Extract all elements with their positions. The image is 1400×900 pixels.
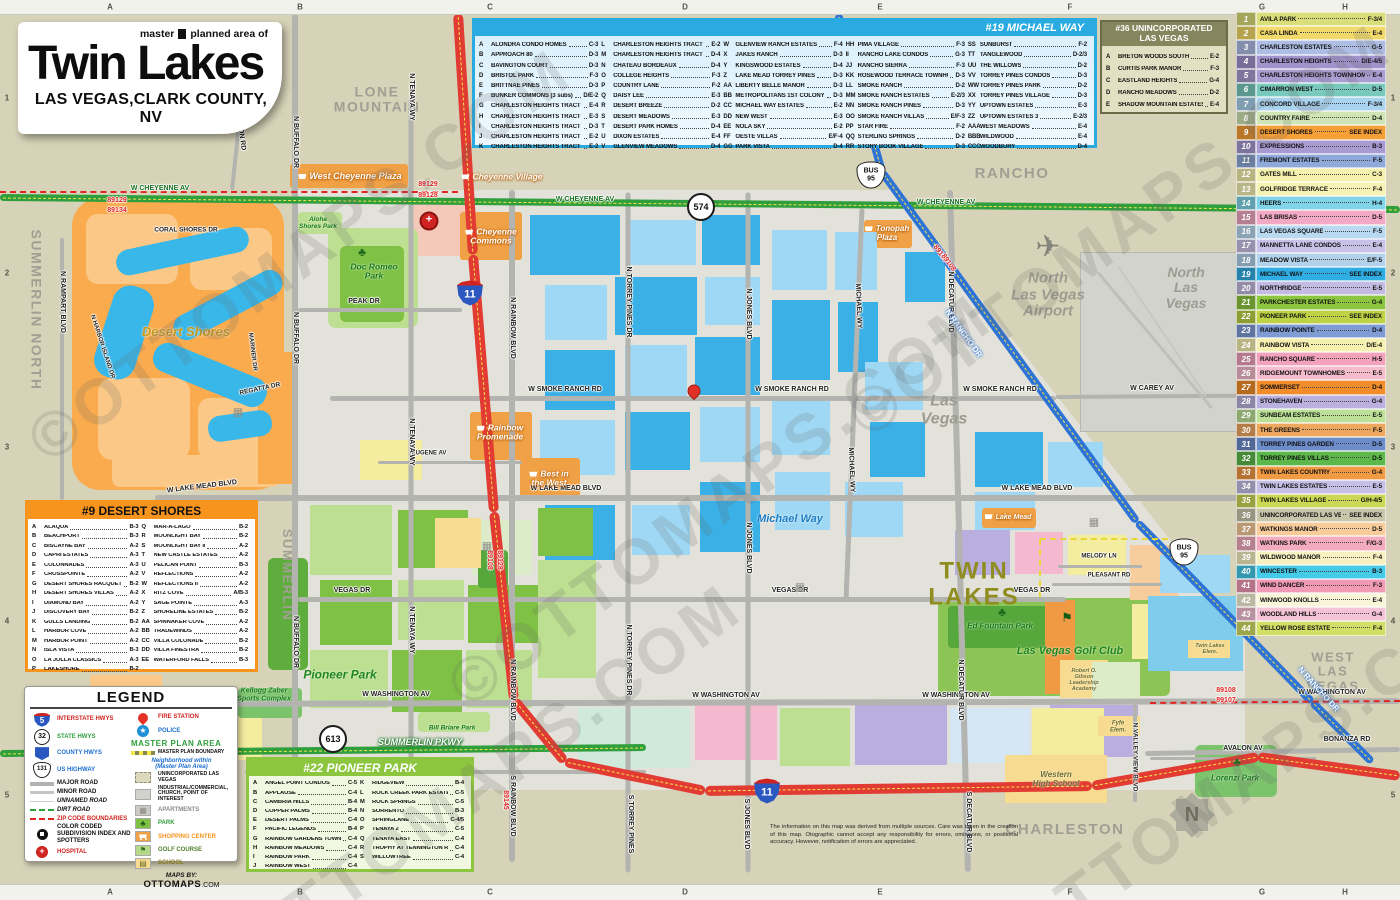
sidebar-entry: 2CASA LINDAE-4 (1236, 26, 1386, 40)
state-route-icon: 32 (34, 729, 50, 745)
disclaimer-text: The information on this map was derived … (770, 824, 1018, 847)
index-entry: ZZUPTOWN ESTATES 3E-2/3 (968, 109, 1087, 119)
map-region (1148, 596, 1243, 671)
index-title: #19 MICHAEL WAY (475, 21, 1094, 36)
index-entry: FCROSSPOINTEA-2 (32, 569, 139, 579)
legend-minor-road: MINOR ROAD (30, 789, 131, 796)
map-label: WEST LAS VEGAS (1306, 651, 1359, 694)
sidebar-entry: 11FREMONT ESTATESF-5 (1236, 154, 1386, 168)
grid-letter: A (107, 3, 113, 12)
zip-boundary-icon (30, 818, 54, 820)
map-region (632, 505, 690, 555)
index-entry: SWILLOWTREEC-4 (360, 852, 464, 861)
index-pioneer-park: #22 PIONEER PARK AANGEL POINT CONDOSC-5B… (246, 757, 474, 872)
index-entry: XJAKES RANCHD-3 (723, 48, 842, 58)
index-entry: PCOUNTRY LANEF-2 (601, 79, 720, 89)
legend-dirt-road: DIRT ROAD (30, 807, 131, 814)
map-region (538, 560, 596, 678)
grid-number: 2 (5, 269, 9, 278)
grid-letter: B (297, 3, 303, 12)
map-region (310, 650, 388, 708)
index-entry: ABRETON WOODS SOUTHE-2 (1106, 48, 1219, 60)
index-entry: MMSMOKE RANCH ESTATESE-2/3 (846, 89, 965, 99)
sidebar-entry: 35TWIN LAKES VILLAGEG/H-4/5 (1236, 494, 1386, 508)
map-region (700, 407, 760, 462)
map-region (435, 518, 481, 568)
sidebar-entry: 26RIDGEMOUNT TOWNHOMESE-5 (1236, 366, 1386, 380)
grid-number: 5 (1391, 791, 1395, 800)
index-entry: EENOLA SKYE-2 (723, 120, 842, 130)
legend-industrial: INDUSTRIAL/COMMERCIAL, CHURCH, POINT OF … (131, 786, 232, 803)
sidebar-entry: 31TORREY PINES GARDEND-5 (1236, 437, 1386, 451)
map-label: SUMMERLIN NORTH (28, 230, 43, 391)
index-entry: HCHARLESTON HEIGHTS TRACT #50E-3 (479, 109, 598, 119)
index-entry: RDESERT BREEZED-2 (601, 99, 720, 109)
index-entry: LROCK CREEK PARK ESTATESC-5 (360, 787, 464, 796)
road (155, 495, 1256, 501)
index-entry: MHARBOR POINTA-2 (32, 635, 139, 645)
road (1058, 565, 1142, 568)
map-region (545, 350, 615, 410)
index-title: #9 DESERT SHORES (28, 503, 255, 519)
index-entry: WREFLECTIONS IIA-2 (142, 578, 249, 588)
index-entry: AANGEL POINT CONDOSC-5 (253, 778, 357, 787)
index-entry: HDESERT SHORES VILLASA-2 (32, 588, 139, 598)
index-entry: QDAISY LEEE-3 (601, 89, 720, 99)
map-region (865, 362, 923, 410)
highway-shield: 11 (754, 779, 781, 804)
index-entry: DDNEW WESTE-3 (723, 109, 842, 119)
road (292, 14, 298, 792)
index-entry: ICHARLESTON HEIGHTS TRACT #51D-3 (479, 120, 598, 130)
index-entry: DDVILLA FINESTRAB-2 (142, 645, 249, 655)
sidebar-entry: 17MANNETTA LANE CONDOSE-4 (1236, 239, 1386, 253)
sidebar-entry: 22PIONEER PARKSEE INDEX (1236, 310, 1386, 324)
grid-letter: F (1068, 888, 1073, 897)
index-entry: VGLENVIEW MEADOWSD-4 (601, 140, 720, 150)
sidebar-entry: 23RAINBOW POINTED-4 (1236, 324, 1386, 338)
road (1309, 699, 1375, 765)
title-block: masterplanned area of Twin Lakes LAS VEG… (18, 22, 282, 134)
index-entry: BBMETROPOLITANS 1ST COLONYD-3 (723, 89, 842, 99)
sidebar-entry: 4CHARLESTON HEIGHTSD/E-4/5 (1236, 55, 1386, 69)
minor-road-icon (30, 791, 54, 794)
legend-zip: ZIP CODE BOUNDARIES (30, 816, 131, 823)
legend-unnamed-road: UNNAMED ROAD (30, 798, 131, 805)
index-entry: QTENAYA EASTC-4 (360, 833, 464, 842)
map-region (268, 558, 308, 670)
map-region (530, 215, 620, 275)
index-entry: BBBWILDWOODE-4 (968, 130, 1087, 140)
grid-bar-top (0, 0, 1400, 15)
index-entry: SMOONLIGHT BAY IIA-2 (142, 540, 249, 550)
map-region (955, 530, 1010, 575)
index-title: #22 PIONEER PARK (249, 760, 471, 776)
police-icon: ★ (137, 725, 149, 737)
legend-fire: FIRE STATION (131, 713, 232, 723)
legend-state: 32 STATE HWYS (30, 729, 131, 745)
map-region (625, 412, 690, 470)
sidebar-entry: 41WIND DANCERF-3 (1236, 579, 1386, 593)
legend-title: LEGEND (30, 690, 232, 709)
map-region (1188, 640, 1230, 658)
index-entry: KCHARLESTON HEIGHTS TRACT #54E-2 (479, 140, 598, 150)
map-region (1032, 708, 1104, 758)
sidebar-entry: 30THE GREENSF-5 (1236, 423, 1386, 437)
road (509, 190, 515, 862)
dirt-road-icon (30, 809, 54, 811)
master-plan-boundary-icon (131, 751, 155, 755)
sidebar-entry: 29SUNBEAM ESTATESE-5 (1236, 409, 1386, 423)
index-entry: FBUNKER COMMONS (3 subs)D/E-2 (479, 89, 598, 99)
sidebar-entry: 10EXPRESSIONSB-3 (1236, 140, 1386, 154)
road (1052, 583, 1162, 586)
grid-letter: G (1259, 888, 1265, 897)
sidebar-entry: 6CIMARRON WESTD-5 (1236, 83, 1386, 97)
map-region (982, 508, 1036, 528)
sidebar-entry: 15LAS BRISASD-5 (1236, 210, 1386, 224)
legend-master-plan-area: MASTER PLAN AREA (131, 739, 232, 748)
index-unincorporated: #36 UNINCORPORATED LAS VEGAS ABRETON WOO… (1100, 20, 1228, 114)
index-entry: IIRANCHO LAKE CONDOSG-3 (846, 48, 965, 58)
index-entry: ZLAKE MEAD TORREY PINESD-3 (723, 69, 842, 79)
map-title: Twin Lakes (28, 36, 274, 91)
road (60, 238, 64, 500)
index-entry: LHARBOR COVEA-2 (32, 626, 139, 636)
interstate-shield-icon: 5 (34, 713, 51, 727)
index-entry: NNSMOKE RANCH PINESD-3 (846, 99, 965, 109)
legend: LEGEND 5 INTERSTATE HWYS 32 STATE HWYS C… (24, 686, 238, 862)
index-entry: JCHARLESTON HEIGHTS TRACT #53E-2 (479, 130, 598, 140)
grid-number: 5 (5, 791, 9, 800)
index-entry: NSORRENTOB-3 (360, 806, 464, 815)
grid-letter: G (1259, 3, 1265, 12)
map-region (780, 708, 850, 766)
legend-apartments: APARTMENTS (131, 805, 232, 816)
index-entry: GCHARLESTON HEIGHTS TRACT #49E-4 (479, 99, 598, 109)
index-entry: OSPRINGLANEC-4/5 (360, 815, 464, 824)
index-entry: CEASTLAND HEIGHTSG-4 (1106, 72, 1219, 84)
sidebar-entry: 19MICHAEL WAYSEE INDEX (1236, 267, 1386, 281)
index-entry: SDESERT MEADOWSE-3 (601, 109, 720, 119)
legend-spotters: COLOR CODED SUBDIVISION INDEX AND SPOTTE… (30, 824, 131, 844)
map-region (870, 422, 925, 477)
grid-number: 2 (1391, 269, 1395, 278)
index-entry: DRANCHO MEADOWSD-2 (1106, 84, 1219, 96)
index-entry: YSAGE POINTEA-3 (142, 597, 249, 607)
sidebar-entry: 32TORREY PINES VILLASD-5 (1236, 451, 1386, 465)
index-entry: EDESERT PALMSC-4 (253, 815, 357, 824)
index-entry: EEWATERFORD FALLSB-3 (142, 654, 249, 664)
golf-flag-icon (135, 845, 151, 856)
index-entry: IDIAMOND BAYA-2 (32, 597, 139, 607)
index-entry: OCOLLEGE HEIGHTSF-3 (601, 69, 720, 79)
industrial-swatch-icon (135, 789, 151, 800)
map-region (855, 705, 947, 765)
index-entry: UUTHE WILLOWSD-2 (968, 58, 1087, 68)
index-michael-way: #19 MICHAEL WAY AALONDRA CONDO HOMESC-3B… (472, 18, 1097, 148)
index-entry: HRAINBOW MEADOWSC-4 (253, 842, 357, 851)
map-region (578, 708, 690, 768)
index-entry: FPACIFIC LEGENDSB-4 (253, 824, 357, 833)
index-entry: DCAPRI ESTATESA-3 (32, 550, 139, 560)
map-region (320, 580, 392, 645)
unincorporated-swatch-icon (135, 772, 151, 783)
sidebar-entry: 25RANCHO SQUAREH-5 (1236, 352, 1386, 366)
index-entry: JRAINBOW WESTC-4 (253, 861, 357, 870)
us-shield-icon: 131 (33, 762, 51, 778)
map-region (700, 482, 760, 552)
index-entry: ECOLONNADESA-3 (32, 559, 139, 569)
index-entry: SSSUNBURSTF-2 (968, 38, 1087, 48)
index-entry: AAAWEST MEADOWSE-4 (968, 120, 1087, 130)
sidebar-entry: 28STONEHAVENG-4 (1236, 395, 1386, 409)
county-shield-icon (35, 747, 49, 760)
legend-school: SCHOOL (131, 858, 232, 869)
road (746, 192, 751, 872)
index-entry: VVTORREY PINES CONDOSD-3 (968, 69, 1087, 79)
sidebar-entry: 39WILDWOOD MANORF-4 (1236, 551, 1386, 565)
map-region (628, 220, 696, 265)
map-region (772, 397, 830, 455)
map-region (470, 412, 532, 460)
legend-hospital: + HOSPITAL (30, 846, 131, 858)
index-entry: CBISCAYNE BAYA-2 (32, 540, 139, 550)
legend-police: ★ POLICE (131, 725, 232, 737)
index-entry: OLA JOLLA CLASSICSA-3 (32, 654, 139, 664)
map-region (625, 345, 687, 400)
legend-golf: GOLF COURSE (131, 845, 232, 856)
map-region (98, 378, 190, 460)
hospital-icon: + (36, 846, 48, 858)
road (1040, 538, 1168, 540)
index-entry: UPELICAN POINTB-3 (142, 559, 249, 569)
index-entry: CCVILLA COLONADEB-2 (142, 635, 249, 645)
index-entry: XRITZ COVEA/B-3 (142, 588, 249, 598)
legend-park: PARK (131, 818, 232, 829)
index-entry: PPSTAR FIREF-2 (846, 120, 965, 130)
index-entry: AALONDRA CONDO HOMESC-3 (479, 38, 598, 48)
sidebar-entry: 20NORTHRIDGEE-5 (1236, 281, 1386, 295)
sidebar-entry: 38WATKINS PARKF/G-3 (1236, 536, 1386, 550)
sidebar-entry: 37WATKINGS MANORD-5 (1236, 522, 1386, 536)
map-region (772, 230, 827, 290)
legend-major-road: MAJOR ROAD (30, 780, 131, 787)
highway-shield: 574 (687, 193, 715, 221)
map-region (545, 285, 607, 340)
map-region (538, 508, 593, 556)
index-entry: RTROPHY AT TENNINGTON RIDGEC-4 (360, 842, 464, 851)
map-region (975, 432, 1043, 487)
index-entry: YYUPTOWN ESTATESE-3 (968, 99, 1087, 109)
road (1039, 539, 1041, 597)
index-entry: UDIXON ESTATESE-4 (601, 130, 720, 140)
map-region (1005, 755, 1107, 803)
school-book-icon (135, 858, 151, 869)
map-region (695, 705, 777, 760)
index-entry: WGLENVIEW RANCH ESTATESF-4 (723, 38, 842, 48)
legend-shopping: SHOPPING CENTER (131, 831, 232, 842)
index-entry: KKROSEWOOD TERRACE TOWNHOMESD-3 (846, 69, 965, 79)
grid-letter: D (682, 888, 688, 897)
sidebar-entry: 24RAINBOW VISTAD/E-4 (1236, 338, 1386, 352)
index-entry: BAPPROACH 80D-3 (479, 48, 598, 58)
index-entry: MROCK SPRINGSC-5 (360, 796, 464, 805)
sidebar-entry: 7CONCORD VILLAGEF-3/4 (1236, 97, 1386, 111)
map-region (1092, 662, 1140, 702)
sidebar-entry: 13GOLFRIDGE TERRACEF-4 (1236, 182, 1386, 196)
grid-letter: E (877, 888, 882, 897)
index-title: #36 UNINCORPORATED LAS VEGAS (1102, 22, 1226, 46)
index-entry: GRAINBOW GARDENS TOWNHOMESC-4 (253, 833, 357, 842)
index-entry: LLSMOKE RANCHD-2 (846, 79, 965, 89)
index-entry: TTTANGLEWOODD-2/3 (968, 48, 1087, 58)
index-entry: OOSMOKE RANCH VILLASE/F-3 (846, 109, 965, 119)
index-entry: YKINGSWOOD ESTATESD-4 (723, 58, 842, 68)
grid-letter: B (297, 888, 303, 897)
index-entry: KRIDGEVIEWB-4 (360, 778, 464, 787)
index-entry: CCAMBRIA HILLSB-4 (253, 796, 357, 805)
index-entry: EBRITTNAE PINESD-3 (479, 79, 598, 89)
road (1257, 752, 1400, 781)
map-region (775, 472, 830, 530)
legend-unincorporated: UNINCORPORATED LAS VEGAS (131, 772, 232, 783)
index-entry: NISLA VISTAB-3 (32, 645, 139, 655)
index-entry: TDESERT PARK HOMESD-4 (601, 120, 720, 130)
grid-letter: F (1068, 3, 1073, 12)
map-stage: SUMMERLIN NORTHSUMMERLINLONE MOUNTAINRAN… (0, 0, 1400, 900)
sidebar-entry: 40WINCESTERB-3 (1236, 565, 1386, 579)
map-region (772, 300, 830, 380)
sidebar-entry: 9DESERT SHORESSEE INDEX (1236, 125, 1386, 139)
map-label: RANCHO (975, 166, 1050, 183)
map-label: 89129 (418, 181, 437, 189)
sidebar-entry: 16LAS VEGAS SQUAREF-5 (1236, 225, 1386, 239)
legend-us: 131 US HIGHWAY (30, 762, 131, 778)
map-region (310, 505, 392, 575)
index-entry: AALAQUAB-3 (32, 521, 139, 531)
grid-letter: H (1342, 3, 1348, 12)
index-entry: DBRISTOL PARKF-3 (479, 69, 598, 79)
map-label: 89145 (501, 790, 509, 809)
map-region (1068, 535, 1126, 575)
spotter-icon (37, 829, 48, 840)
grid-number: 1 (1391, 94, 1395, 103)
grid-letter: D (682, 3, 688, 12)
map-region (112, 455, 280, 487)
index-entry: JJRANCHO SIERRAF-3 (846, 58, 965, 68)
map-region (905, 252, 945, 302)
index-entry: CBAVINGTON COURTD-3 (479, 58, 598, 68)
grid-letter: C (487, 3, 493, 12)
index-entry: QQSTERLING SPRINGSD-2 (846, 130, 965, 140)
map-label: CHARLESTON (1006, 822, 1125, 839)
map-label: LONE MOUNTAIN (334, 85, 420, 116)
park-tree-icon (135, 818, 151, 829)
index-entry: XXTORREY PINES VILLAGED-3 (968, 89, 1087, 99)
map-region (520, 458, 580, 500)
index-entry: BAPPLAUSEC-4 (253, 787, 357, 796)
grid-number: 4 (1391, 617, 1395, 626)
index-entry: RMOONLIGHT BAYB-2 (142, 531, 249, 541)
index-entry: GGPARK VISTAD-4 (723, 140, 842, 150)
legend-interstate: 5 INTERSTATE HWYS (30, 713, 131, 727)
road (0, 191, 458, 193)
index-desert-shores: #9 DESERT SHORES AALAQUAB-3BBEACHPORTB-3… (25, 500, 258, 672)
index-entry: PLAKESHOREB-2 (32, 664, 139, 674)
map-label: Cheyenne Village (461, 172, 542, 181)
fire-icon (136, 711, 150, 725)
map-region (418, 712, 490, 732)
index-entry: LCHARLESTON HEIGHTS TRACT #55E-2 (601, 38, 720, 48)
index-entry: TNEW CASTLE ESTATESA-2 (142, 550, 249, 560)
map-subtitle: LAS VEGAS,CLARK COUNTY, NV (28, 91, 274, 127)
index-entry: JDISCOVERY BAYB-2 (32, 607, 139, 617)
sidebar-entry: 42WINWOOD KNOLLSE-4 (1236, 593, 1386, 607)
grid-letter: H (1342, 888, 1348, 897)
sidebar-entry: 5CHARLESTON HEIGHTS TOWNHOMESE-4 (1236, 69, 1386, 83)
grid-number: 1 (5, 94, 9, 103)
index-entry: AALIBERTY BELLE MANORD-3 (723, 79, 842, 89)
legend-county: COUNTY HWYS (30, 747, 131, 760)
grid-number: 3 (1391, 443, 1395, 452)
road (298, 308, 462, 312)
index-entry: FFOESTE VILLASE/F-4 (723, 130, 842, 140)
sidebar-entry: 33TWIN LAKES COUNTRYG-4 (1236, 466, 1386, 480)
index-entry: KGULLS LANDINGB-2 (32, 616, 139, 626)
index-entry: CCCWOODBURYD-4 (968, 140, 1087, 150)
index-entry: CCMICHAEL WAY ESTATESE-2 (723, 99, 842, 109)
sidebar-entry: 36UNINCORPORATED LAS VEGASSEE INDEX (1236, 508, 1386, 522)
legend-neighborhood-note: Neighborhood within (Master Plan Area) (131, 758, 232, 770)
compass-icon: N (1167, 790, 1217, 840)
index-entry: BCURTIS PARK MANORF-3 (1106, 60, 1219, 72)
grid-letter: C (487, 888, 493, 897)
index-entry: HHPIMA VILLAGEF-3 (846, 38, 965, 48)
highway-shield: 613 (319, 725, 347, 753)
index-entry: AASPINNAKER COVEA-2 (142, 616, 249, 626)
sidebar-entry: 27SOMMERSETD-4 (1236, 380, 1386, 394)
index-entry: VREFLECTIONSA-2 (142, 569, 249, 579)
road (1133, 704, 1137, 802)
sidebar-entry: 1AVILA PARKF-3/4 (1236, 12, 1386, 26)
road (330, 396, 1056, 401)
index-entry: BBTRADEWINDSA-2 (142, 626, 249, 636)
maps-by-credit: MAPS BY: OTTOMAPS.COM (131, 872, 232, 890)
grid-letter: E (877, 3, 882, 12)
index-entry: GDESERT SHORES RACQUET CLUBB-2 (32, 578, 139, 588)
map-region (702, 215, 760, 265)
sidebar-entry: 44YELLOW ROSE ESTATEF-4 (1236, 621, 1386, 635)
map-region (705, 277, 760, 325)
sidebar-entry: 3CHARLESTON ESTATESG-5 (1236, 40, 1386, 54)
index-entry: QMAR-A-LAGOB-2 (142, 521, 249, 531)
sidebar-entry: 14HEERSH-4 (1236, 196, 1386, 210)
road (378, 461, 522, 464)
apartments-icon (135, 805, 151, 816)
index-entry: DCOPPER PALMSB-4 (253, 806, 357, 815)
index-entry: NCHATEAU BORDEAUXD-4 (601, 58, 720, 68)
index-entry: IRAINBOW PARKC-4 (253, 852, 357, 861)
sidebar-entry: 21PARKCHESTER ESTATESG-4 (1236, 295, 1386, 309)
index-entry: RRSTORY BOOK VILLAGED-3 (846, 140, 965, 150)
grid-number: 3 (5, 443, 9, 452)
unnamed-road-icon (30, 801, 54, 803)
subdivision-sidebar: 1AVILA PARKF-3/42CASA LINDAE-43CHARLESTO… (1236, 12, 1386, 636)
index-entry: MCHARLESTON HEIGHTS TRACT #58D-4 (601, 48, 720, 58)
map-region (845, 482, 903, 537)
sidebar-entry: 12GATES MILLC-3 (1236, 168, 1386, 182)
